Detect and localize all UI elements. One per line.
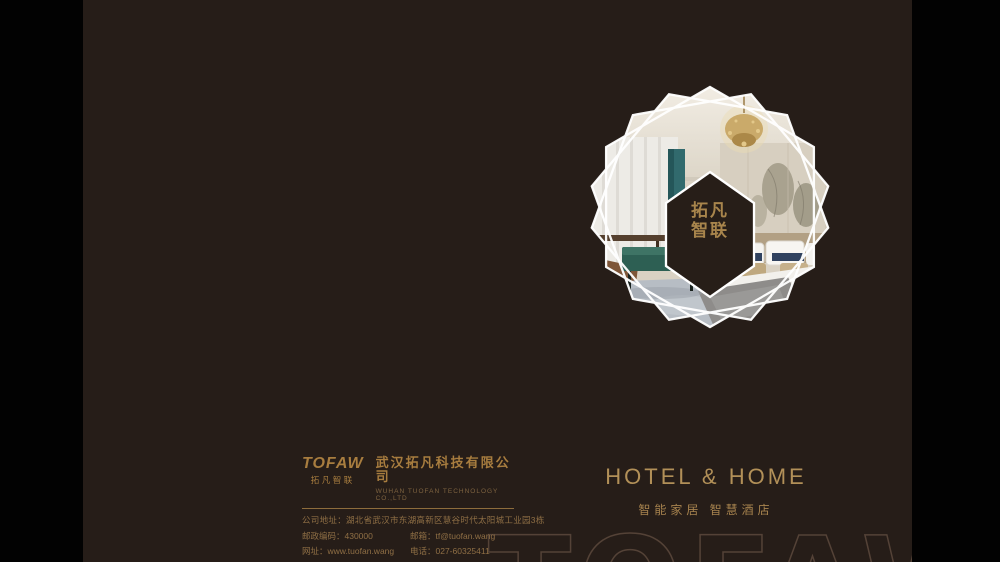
left-black-panel — [0, 0, 83, 562]
company-header: TOFAW 拓凡智联 武汉拓凡科技有限公司 WUHAN TUOFAN TECHN… — [302, 456, 522, 502]
company-name-cn: 武汉拓凡科技有限公司 — [376, 456, 522, 485]
postcode: 邮政编码：430000 — [302, 530, 408, 542]
email: 邮箱：tf@tuofan.wang — [410, 530, 522, 542]
divider-rule — [302, 508, 514, 509]
emblem-brand-line1: 拓凡 — [691, 201, 729, 220]
website: 网址：www.tuofan.wang — [302, 545, 408, 557]
tagline-block: HOTEL & HOME 智能家居 智慧酒店 — [558, 464, 854, 518]
brochure-cover: TOFAW — [0, 0, 1000, 562]
company-name-en: WUHAN TUOFAN TECHNOLOGY CO.,LTD — [376, 488, 522, 502]
company-info-block: TOFAW 拓凡智联 武汉拓凡科技有限公司 WUHAN TUOFAN TECHN… — [302, 456, 522, 562]
right-black-panel — [912, 0, 1000, 562]
emblem-brand-line2: 智联 — [691, 220, 729, 240]
company-address: 公司地址：湖北省武汉市东湖高新区慧谷时代太阳城工业园3栋 — [302, 514, 522, 526]
cover-title: HOTEL & HOME — [558, 464, 854, 490]
emblem-graphic: 拓凡 智联 — [582, 85, 838, 335]
phone: 电话：027-60325411 — [410, 545, 522, 557]
logo-wordmark: TOFAW — [302, 456, 364, 472]
shutter-emblem: 拓凡 智联 — [582, 85, 838, 335]
contact-grid: 邮政编码：430000 邮箱：tf@tuofan.wang 网址：www.tuo… — [302, 530, 522, 557]
cover-subtitle: 智能家居 智慧酒店 — [558, 501, 854, 518]
company-names: 武汉拓凡科技有限公司 WUHAN TUOFAN TECHNOLOGY CO.,L… — [376, 456, 522, 502]
logo-chinese-name: 拓凡智联 — [302, 474, 364, 486]
company-logo: TOFAW 拓凡智联 — [302, 456, 364, 486]
